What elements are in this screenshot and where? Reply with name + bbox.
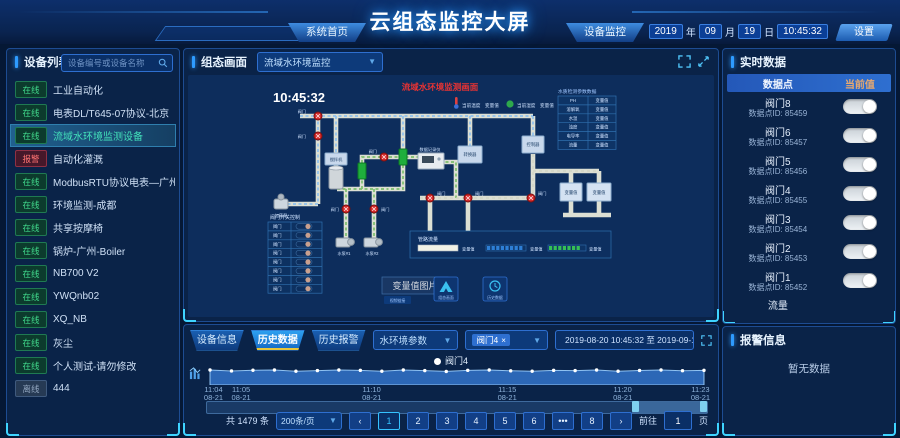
realtime-row: 阀门5 数据点ID: 85456 bbox=[727, 150, 891, 179]
date-month-unit: 月 bbox=[725, 24, 735, 39]
scada-panel: 组态画面 流域水环境监控▼ 流域水环境监测画面 10:45:32 bbox=[183, 48, 719, 322]
value-box-1: 变量值 bbox=[560, 183, 582, 201]
page-button[interactable]: 8 bbox=[581, 412, 603, 430]
value-toggle[interactable] bbox=[843, 215, 877, 230]
realtime-table-header: 数据点 当前值 bbox=[727, 74, 891, 92]
svg-text:变量值: 变量值 bbox=[596, 97, 610, 104]
device-search-input[interactable] bbox=[66, 57, 158, 69]
screen-select[interactable]: 流域水环境监控▼ bbox=[257, 52, 383, 72]
diagram-title: 流域水环境监测画面 bbox=[402, 82, 479, 92]
device-label: 个人测试-请勿修改 bbox=[53, 358, 136, 373]
svg-text:变量值图片: 变量值图片 bbox=[392, 280, 437, 291]
page-size-select[interactable]: 200条/页▼ bbox=[276, 412, 342, 430]
history-clock-button[interactable]: 历史数据 bbox=[483, 277, 507, 301]
total-count: 共 1479 条 bbox=[226, 414, 269, 427]
device-list: 在线工业自动化 在线电表DL/T645-07协议-北京 在线流域水环境监测设备 … bbox=[7, 77, 179, 431]
temp-label: 当前温度 bbox=[462, 102, 481, 109]
date-month: 09 bbox=[699, 24, 722, 39]
page-next-button[interactable]: › bbox=[610, 412, 632, 430]
chevron-down-icon: ▼ bbox=[329, 416, 337, 425]
svg-text:阀门: 阀门 bbox=[273, 276, 282, 283]
device-label: 444 bbox=[53, 383, 70, 394]
value-toggle[interactable] bbox=[843, 157, 877, 172]
goto-label: 前往 bbox=[639, 414, 657, 427]
header-deco-line-left bbox=[18, 11, 268, 13]
svg-text:组态画面: 组态画面 bbox=[438, 295, 454, 300]
datazoom-icon[interactable] bbox=[189, 367, 202, 380]
chevron-down-icon: ▼ bbox=[533, 336, 541, 345]
humidity-icon bbox=[506, 100, 513, 107]
pump-2: 水泵#2 bbox=[364, 238, 382, 256]
col-current-value: 当前值 bbox=[829, 76, 891, 91]
status-badge: 在线 bbox=[15, 265, 47, 282]
svg-text:阀门: 阀门 bbox=[273, 223, 282, 230]
no-data-text: 暂无数据 bbox=[723, 361, 895, 376]
date-day: 19 bbox=[738, 24, 761, 39]
status-badge: 在线 bbox=[15, 219, 47, 236]
device-item[interactable]: 在线个人测试-请勿修改 bbox=[11, 355, 175, 376]
svg-text:浊度: 浊度 bbox=[569, 124, 578, 131]
humidity-label: 当前湿度 bbox=[517, 102, 536, 109]
device-item[interactable]: 在线工业自动化 bbox=[11, 79, 175, 100]
status-badge: 在线 bbox=[15, 173, 47, 190]
svg-text:阀门: 阀门 bbox=[273, 241, 282, 248]
scada-logo-button[interactable]: 组态画面 bbox=[434, 277, 458, 301]
realtime-title: 实时数据 bbox=[740, 54, 786, 70]
date-range-picker[interactable]: 2019-08-20 10:45:32 至 2019-09-19 10:45:3… bbox=[555, 330, 694, 350]
device-item[interactable]: 在线共享按摩椅 bbox=[11, 217, 175, 238]
device-label: 自动化灌溉 bbox=[53, 151, 103, 166]
status-badge: 在线 bbox=[15, 288, 47, 305]
diagram-clock: 10:45:32 bbox=[273, 90, 325, 105]
water-table-title: 水质检测参数数据 bbox=[558, 88, 597, 95]
device-label: XQ_NB bbox=[53, 314, 87, 325]
history-panel: 设备信息 历史数据 历史报警 水环境参数▼ 阀门4× ▼ 2019-08-20 … bbox=[183, 324, 719, 436]
status-badge: 在线 bbox=[15, 334, 47, 351]
svg-text:变量值: 变量值 bbox=[596, 142, 610, 149]
device-item[interactable]: 在线电表DL/T645-07协议-北京 bbox=[11, 102, 175, 123]
water-quality-table: 水质检测参数数据 PH变量值 溶解氧变量值 水温变量值 浊度变量值 电导率变量值 bbox=[558, 88, 616, 149]
chevron-down-icon: ▼ bbox=[444, 336, 452, 345]
point-tag: 阀门4× bbox=[472, 334, 509, 346]
value-toggle[interactable] bbox=[843, 244, 877, 259]
svg-text:阀门: 阀门 bbox=[369, 148, 377, 155]
page-ellipsis[interactable]: ••• bbox=[552, 412, 574, 430]
tank bbox=[329, 166, 343, 189]
device-label: 灰尘 bbox=[53, 335, 73, 350]
svg-text:流量: 流量 bbox=[569, 142, 578, 149]
svg-text:阀门: 阀门 bbox=[298, 108, 306, 115]
device-label: ModbusRTU协议电表—广州 bbox=[53, 174, 175, 189]
device-item[interactable]: 在线灰尘 bbox=[11, 332, 175, 353]
svg-text:视频链接: 视频链接 bbox=[390, 298, 406, 303]
svg-text:阀门: 阀门 bbox=[437, 190, 445, 197]
accent-bar bbox=[731, 56, 734, 68]
search-icon[interactable] bbox=[158, 58, 168, 68]
tag-close-icon[interactable]: × bbox=[501, 336, 506, 345]
tab-system-home[interactable]: 系统首页 bbox=[288, 23, 366, 42]
page-prev-button[interactable]: ‹ bbox=[349, 412, 371, 430]
tab-device-monitor[interactable]: 设备监控 bbox=[566, 23, 644, 42]
svg-text:转换器: 转换器 bbox=[464, 151, 478, 158]
col-datapoint: 数据点 bbox=[727, 76, 829, 91]
valve-control-table: 阀门开关控制 阀门阀门 阀门阀门 阀门阀门 阀门阀门 bbox=[268, 214, 322, 293]
svg-text:阀门: 阀门 bbox=[538, 190, 546, 197]
realtime-row-partial: 流量 bbox=[727, 295, 891, 309]
fullscreen-icon[interactable] bbox=[701, 334, 712, 347]
device-item-selected[interactable]: 在线流域水环境监测设备 bbox=[11, 125, 175, 146]
temp-value: 变量值 bbox=[485, 102, 499, 109]
status-badge: 在线 bbox=[15, 104, 47, 121]
svg-text:阀门: 阀门 bbox=[273, 268, 282, 275]
device-label: 工业自动化 bbox=[53, 82, 103, 97]
history-chart[interactable] bbox=[206, 365, 708, 385]
page-button[interactable]: 1 bbox=[378, 412, 400, 430]
device-item[interactable]: 在线ModbusRTU协议电表—广州 bbox=[11, 171, 175, 192]
controller-box: 控制器 bbox=[522, 136, 544, 153]
svg-text:阀门: 阀门 bbox=[273, 259, 282, 266]
svg-text:变量值: 变量值 bbox=[462, 246, 475, 253]
page-button[interactable]: 6 bbox=[523, 412, 545, 430]
tab-history-data[interactable]: 历史数据 bbox=[251, 330, 305, 351]
device-label: NB700 V2 bbox=[53, 268, 99, 279]
pagination-bar: 共 1479 条 200条/页▼ ‹ 1 2 3 4 5 6 ••• 8 › 前… bbox=[226, 411, 708, 430]
sensor-green-2 bbox=[358, 163, 366, 179]
device-label: 电表DL/T645-07协议-北京 bbox=[53, 105, 169, 120]
page-button[interactable]: 3 bbox=[436, 412, 458, 430]
svg-text:变量值: 变量值 bbox=[593, 189, 607, 196]
device-label: 共享按摩椅 bbox=[53, 220, 103, 235]
status-badge: 离线 bbox=[15, 380, 47, 397]
svg-text:水泵#2: 水泵#2 bbox=[365, 250, 379, 256]
humidity-value: 变量值 bbox=[540, 102, 554, 109]
status-badge: 报警 bbox=[15, 150, 47, 167]
svg-text:水温: 水温 bbox=[569, 115, 578, 122]
pump-1: 水泵#1 bbox=[336, 238, 354, 256]
page-button[interactable]: 2 bbox=[407, 412, 429, 430]
accent-bar bbox=[731, 334, 734, 346]
device-label: 流域水环境监测设备 bbox=[53, 128, 143, 143]
goto-page-input[interactable] bbox=[664, 411, 692, 430]
svg-text:数据记录仪: 数据记录仪 bbox=[420, 146, 442, 153]
svg-text:电导率: 电导率 bbox=[567, 133, 581, 140]
svg-text:变量值: 变量值 bbox=[589, 246, 602, 253]
date-year-unit: 年 bbox=[686, 24, 696, 39]
value-box-2: 变量值 bbox=[587, 183, 611, 201]
valve-table-title: 阀门开关控制 bbox=[270, 214, 300, 221]
realtime-rows: 阀门8 数据点ID: 85459 阀门6 数据点ID: 85457 阀门5 数据… bbox=[727, 92, 891, 323]
date-year: 2019 bbox=[649, 24, 683, 39]
flow-panel: 管路流量 变量值 变量值 变量值 bbox=[410, 231, 611, 258]
svg-text:阀门: 阀门 bbox=[273, 232, 282, 239]
realtime-row: 阀门2 数据点ID: 85453 bbox=[727, 237, 891, 266]
svg-text:阀门: 阀门 bbox=[298, 133, 306, 140]
svg-text:水泵#1: 水泵#1 bbox=[337, 250, 351, 256]
param-select[interactable]: 水环境参数▼ bbox=[373, 330, 459, 350]
x-axis-ticks: 11:0408-21 11:0508-21 11:1008-21 11:1508… bbox=[206, 386, 708, 401]
data-recorder: 数据记录仪 bbox=[418, 146, 444, 169]
accent-bar bbox=[192, 56, 195, 68]
device-item[interactable]: 在线NB700 V2 bbox=[11, 263, 175, 284]
svg-text:变量值: 变量值 bbox=[565, 189, 579, 196]
page-button[interactable]: 4 bbox=[465, 412, 487, 430]
clock-time: 10:45:32 bbox=[777, 24, 828, 39]
device-label: 环境监测-成都 bbox=[53, 197, 116, 212]
status-badge: 在线 bbox=[15, 242, 47, 259]
expand-arrows-icon[interactable] bbox=[697, 55, 710, 68]
value-toggle[interactable] bbox=[843, 99, 877, 114]
alarm-title: 报警信息 bbox=[740, 332, 786, 348]
page-button[interactable]: 5 bbox=[494, 412, 516, 430]
device-list-panel: 设备列表 在线工业自动化 在线电表DL/T645-07协议-北京 在线流域水环境… bbox=[6, 48, 180, 436]
status-badge: 在线 bbox=[15, 196, 47, 213]
svg-text:变量值: 变量值 bbox=[596, 106, 610, 113]
sensor-green-1 bbox=[399, 149, 407, 165]
device-item[interactable]: 在线环境监测-成都 bbox=[11, 194, 175, 215]
svg-text:溶解氧: 溶解氧 bbox=[567, 106, 581, 113]
device-label: YWQnb02 bbox=[53, 291, 99, 302]
value-toggle[interactable] bbox=[843, 273, 877, 288]
svg-text:变量值: 变量值 bbox=[530, 246, 543, 253]
header-deco-line-right bbox=[632, 11, 882, 13]
tab-device-info[interactable]: 设备信息 bbox=[190, 330, 244, 351]
value-toggle[interactable] bbox=[843, 186, 877, 201]
point-select[interactable]: 阀门4× ▼ bbox=[465, 330, 548, 350]
header-bar: 云组态监控大屏 系统首页 设备监控 2019 年 09 月 19 日 10:45… bbox=[0, 0, 900, 44]
device-item[interactable]: 在线XQ_NB bbox=[11, 309, 175, 330]
realtime-row: 阀门3 数据点ID: 85454 bbox=[727, 208, 891, 237]
svg-text:阀门: 阀门 bbox=[381, 206, 389, 213]
realtime-row: 阀门6 数据点ID: 85457 bbox=[727, 121, 891, 150]
scada-diagram: 流域水环境监测画面 10:45:32 当前温度 变量值 当前湿度 变量值 水质检… bbox=[188, 75, 714, 317]
svg-text:变量值: 变量值 bbox=[596, 133, 610, 140]
chevron-down-icon: ▼ bbox=[368, 57, 376, 66]
realtime-row: 阀门1 数据点ID: 85452 bbox=[727, 266, 891, 295]
device-label: 锅炉-广州-Boiler bbox=[53, 243, 125, 258]
fullscreen-icon[interactable] bbox=[678, 55, 691, 68]
legend-dot bbox=[434, 358, 441, 365]
converter-box: 转换器 bbox=[458, 146, 482, 163]
svg-text:变量值: 变量值 bbox=[596, 115, 610, 122]
status-badge: 在线 bbox=[15, 127, 47, 144]
realtime-panel: 实时数据 数据点 当前值 阀门8 数据点ID: 85459 阀门6 数据点ID:… bbox=[722, 48, 896, 324]
scada-panel-title: 组态画面 bbox=[201, 54, 247, 70]
value-toggle[interactable] bbox=[843, 128, 877, 143]
device-search-box bbox=[61, 54, 173, 72]
svg-text:阀门: 阀门 bbox=[475, 190, 483, 197]
flow-panel-title: 管路流量 bbox=[418, 236, 438, 243]
status-badge: 在线 bbox=[15, 81, 47, 98]
svg-text:控制器: 控制器 bbox=[527, 141, 541, 148]
svg-text:阀门: 阀门 bbox=[273, 250, 282, 257]
status-badge: 在线 bbox=[15, 311, 47, 328]
thermometer-icon bbox=[454, 97, 459, 109]
realtime-row: 阀门4 数据点ID: 85455 bbox=[727, 179, 891, 208]
device-item[interactable]: 在线锅炉-广州-Boiler bbox=[11, 240, 175, 261]
dashboard: 云组态监控大屏 系统首页 设备监控 2019 年 09 月 19 日 10:45… bbox=[0, 0, 900, 438]
tab-history-alarm[interactable]: 历史报警 bbox=[312, 330, 366, 351]
device-item[interactable]: 在线YWQnb02 bbox=[11, 286, 175, 307]
realtime-row: 阀门8 数据点ID: 85459 bbox=[727, 92, 891, 121]
accent-bar bbox=[15, 56, 18, 68]
date-day-unit: 日 bbox=[764, 24, 774, 39]
device-item[interactable]: 离线444 bbox=[11, 378, 175, 399]
svg-text:搅拌机: 搅拌机 bbox=[330, 156, 343, 163]
datetime-widget: 2019 年 09 月 19 日 10:45:32 bbox=[649, 24, 828, 39]
svg-text:PH: PH bbox=[570, 98, 576, 103]
svg-text:历史数据: 历史数据 bbox=[487, 295, 503, 300]
svg-text:变量值: 变量值 bbox=[596, 124, 610, 131]
svg-text:阀门: 阀门 bbox=[273, 285, 282, 292]
mixer-box: 搅拌机 bbox=[325, 153, 347, 165]
device-item[interactable]: 报警自动化灌溉 bbox=[11, 148, 175, 169]
goto-unit: 页 bbox=[699, 414, 708, 427]
status-badge: 在线 bbox=[15, 357, 47, 374]
settings-button[interactable]: 设置 bbox=[835, 24, 893, 41]
svg-text:阀门: 阀门 bbox=[331, 206, 339, 213]
page-title: 云组态监控大屏 bbox=[370, 6, 531, 36]
alarm-panel: 报警信息 暂无数据 bbox=[722, 326, 896, 436]
